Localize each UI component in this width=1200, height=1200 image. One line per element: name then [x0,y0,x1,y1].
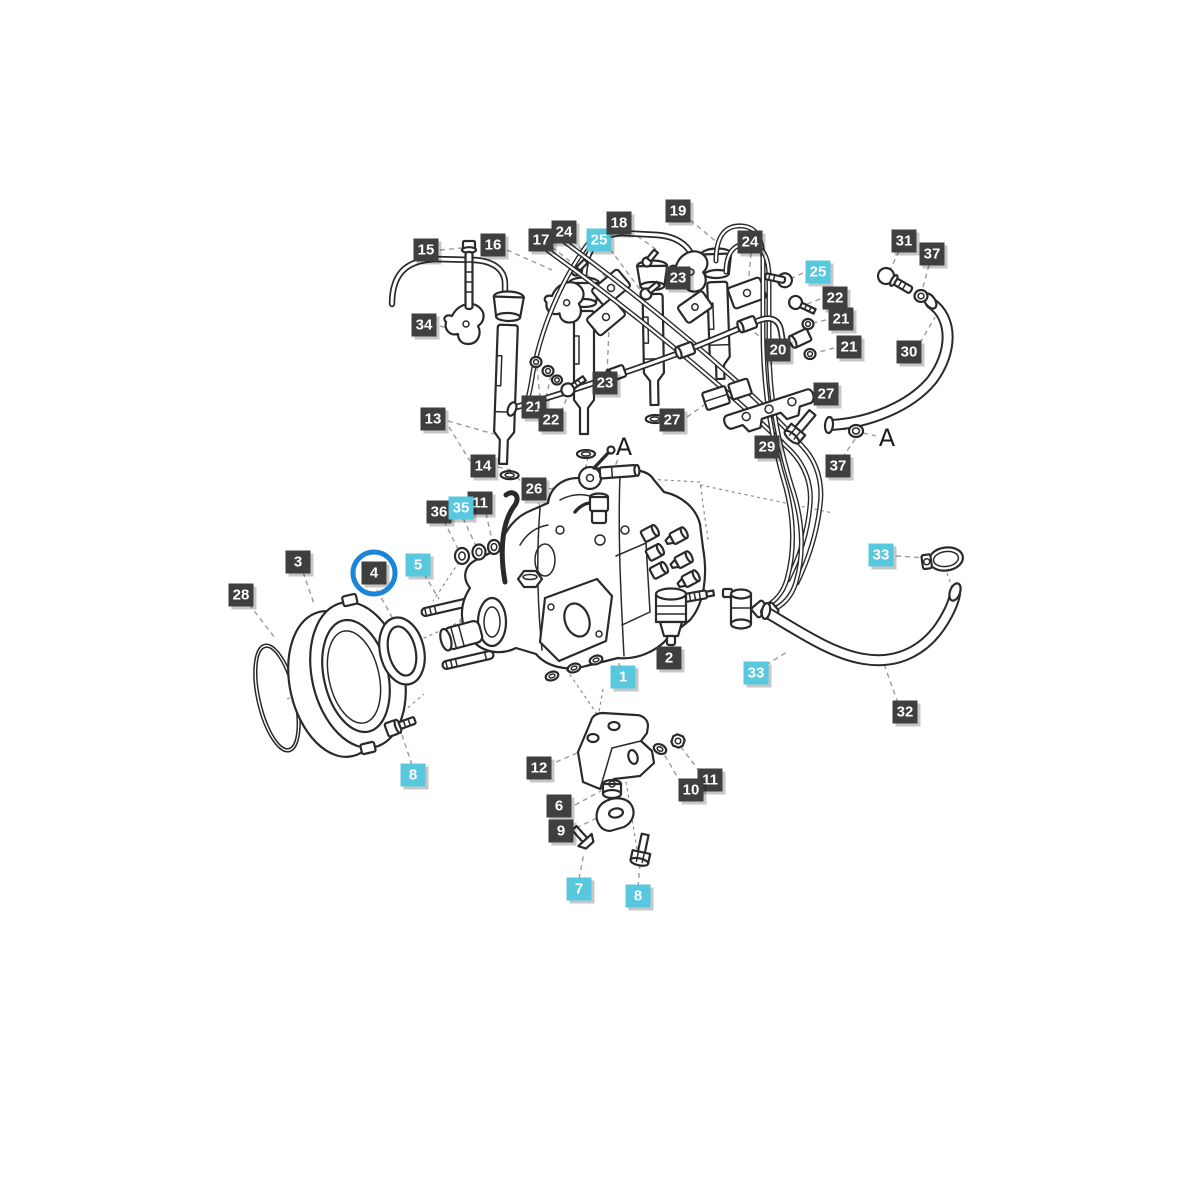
part-label-25[interactable]: 25 [806,261,831,284]
part-label-21[interactable]: 21 [829,308,854,331]
parts-diagram: 1516341724251819232425313722212021302327… [0,0,1200,1200]
part-label-19[interactable]: 19 [666,200,691,223]
washer-37b [849,425,863,437]
clamp-block-27b [728,378,752,399]
bottom-bracket-group [568,713,686,867]
part-label-8[interactable]: 8 [626,885,651,908]
part-label-13[interactable]: 13 [421,408,446,431]
part-label-8[interactable]: 8 [401,764,426,787]
part-label-24[interactable]: 24 [738,231,763,254]
connection-marker-A: A [616,433,632,461]
nut-11b [670,733,685,748]
part-label-16[interactable]: 16 [481,234,506,257]
filler-plug [518,571,542,587]
part-label-17[interactable]: 17 [529,229,554,252]
part-label-27[interactable]: 27 [814,383,839,406]
part-label-15[interactable]: 15 [414,239,439,262]
hose-clamp-33 [921,545,965,573]
solenoid-2 [656,589,714,646]
connection-marker-A: A [879,424,895,452]
part-label-21[interactable]: 21 [837,336,862,359]
clamp-9 [597,798,634,831]
part-label-22[interactable]: 22 [823,287,848,310]
stud-bolt-5b [442,650,494,669]
spacer-6 [603,780,621,798]
part-label-27[interactable]: 27 [660,409,685,432]
part-label-24[interactable]: 24 [552,221,577,244]
part-label-29[interactable]: 29 [755,436,780,459]
part-label-9[interactable]: 9 [549,820,574,843]
part-label-14[interactable]: 14 [471,455,496,478]
pump-cover-group [245,593,494,767]
part-label-34[interactable]: 34 [412,314,437,337]
part-label-5[interactable]: 5 [406,554,431,577]
washer-37a [915,290,928,302]
part-label-35[interactable]: 35 [449,497,474,520]
long-bolt-15 [462,241,476,309]
part-label-18[interactable]: 18 [607,212,632,235]
part-label-10[interactable]: 10 [679,779,704,802]
part-label-28[interactable]: 28 [229,584,254,607]
horn-34 [444,304,483,344]
part-label-2[interactable]: 2 [657,647,682,670]
bolt-8b [630,833,654,868]
part-label-31[interactable]: 31 [892,230,917,253]
drive-shaft [438,620,483,652]
diagram-artwork [0,0,1200,1200]
part-label-4[interactable]: 4 [362,562,387,585]
part-label-23[interactable]: 23 [593,372,618,395]
part-label-7[interactable]: 7 [567,878,592,901]
part-label-37[interactable]: 37 [920,243,945,266]
part-label-33[interactable]: 33 [744,662,769,685]
clamp-block-27a [702,386,730,411]
return-pipe-16 [392,259,505,304]
hollow-screw-22b [787,294,817,317]
elbow-connector-33 [723,589,751,629]
part-label-12[interactable]: 12 [527,757,552,780]
washer-10 [652,742,668,756]
part-label-37[interactable]: 37 [826,455,851,478]
part-label-1[interactable]: 1 [611,666,636,689]
part-label-26[interactable]: 26 [522,478,547,501]
part-label-33[interactable]: 33 [869,544,894,567]
injector-1 [487,291,525,479]
part-label-30[interactable]: 30 [897,341,922,364]
part-label-3[interactable]: 3 [286,551,311,574]
part-label-32[interactable]: 32 [893,701,918,724]
part-label-23[interactable]: 23 [666,267,691,290]
part-label-6[interactable]: 6 [547,795,572,818]
part-label-20[interactable]: 20 [766,339,791,362]
part-label-22[interactable]: 22 [539,409,564,432]
banjo-bolt-31 [875,265,915,297]
bracket-12 [578,713,654,789]
